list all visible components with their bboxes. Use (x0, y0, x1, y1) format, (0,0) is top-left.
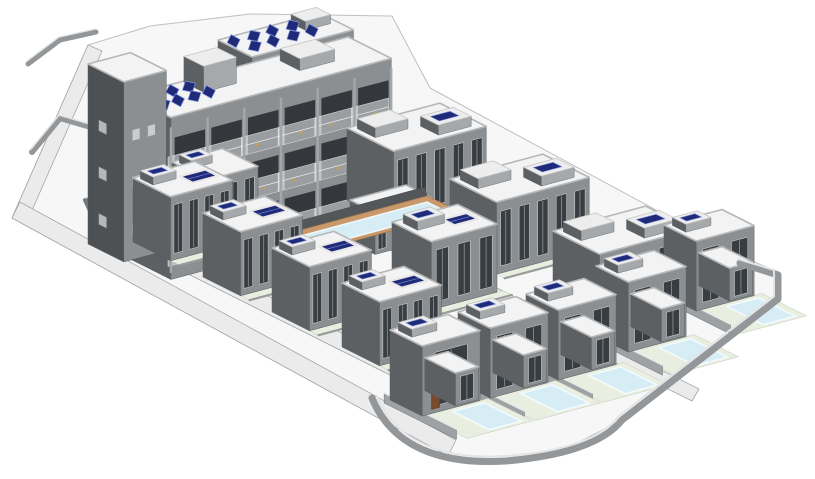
balcony-pier (317, 88, 319, 234)
balcony-furniture (336, 167, 339, 170)
balcony-furniture (263, 186, 266, 189)
balcony-furniture (300, 131, 303, 134)
balcony-furniture (292, 179, 295, 182)
balcony-furniture (256, 143, 259, 146)
balcony-furniture (329, 123, 332, 126)
wall-southwest (88, 64, 124, 262)
residential-complex-model (0, 0, 815, 479)
window-small (148, 124, 156, 137)
architectural-3d-render (0, 0, 815, 479)
window-small (132, 128, 140, 141)
